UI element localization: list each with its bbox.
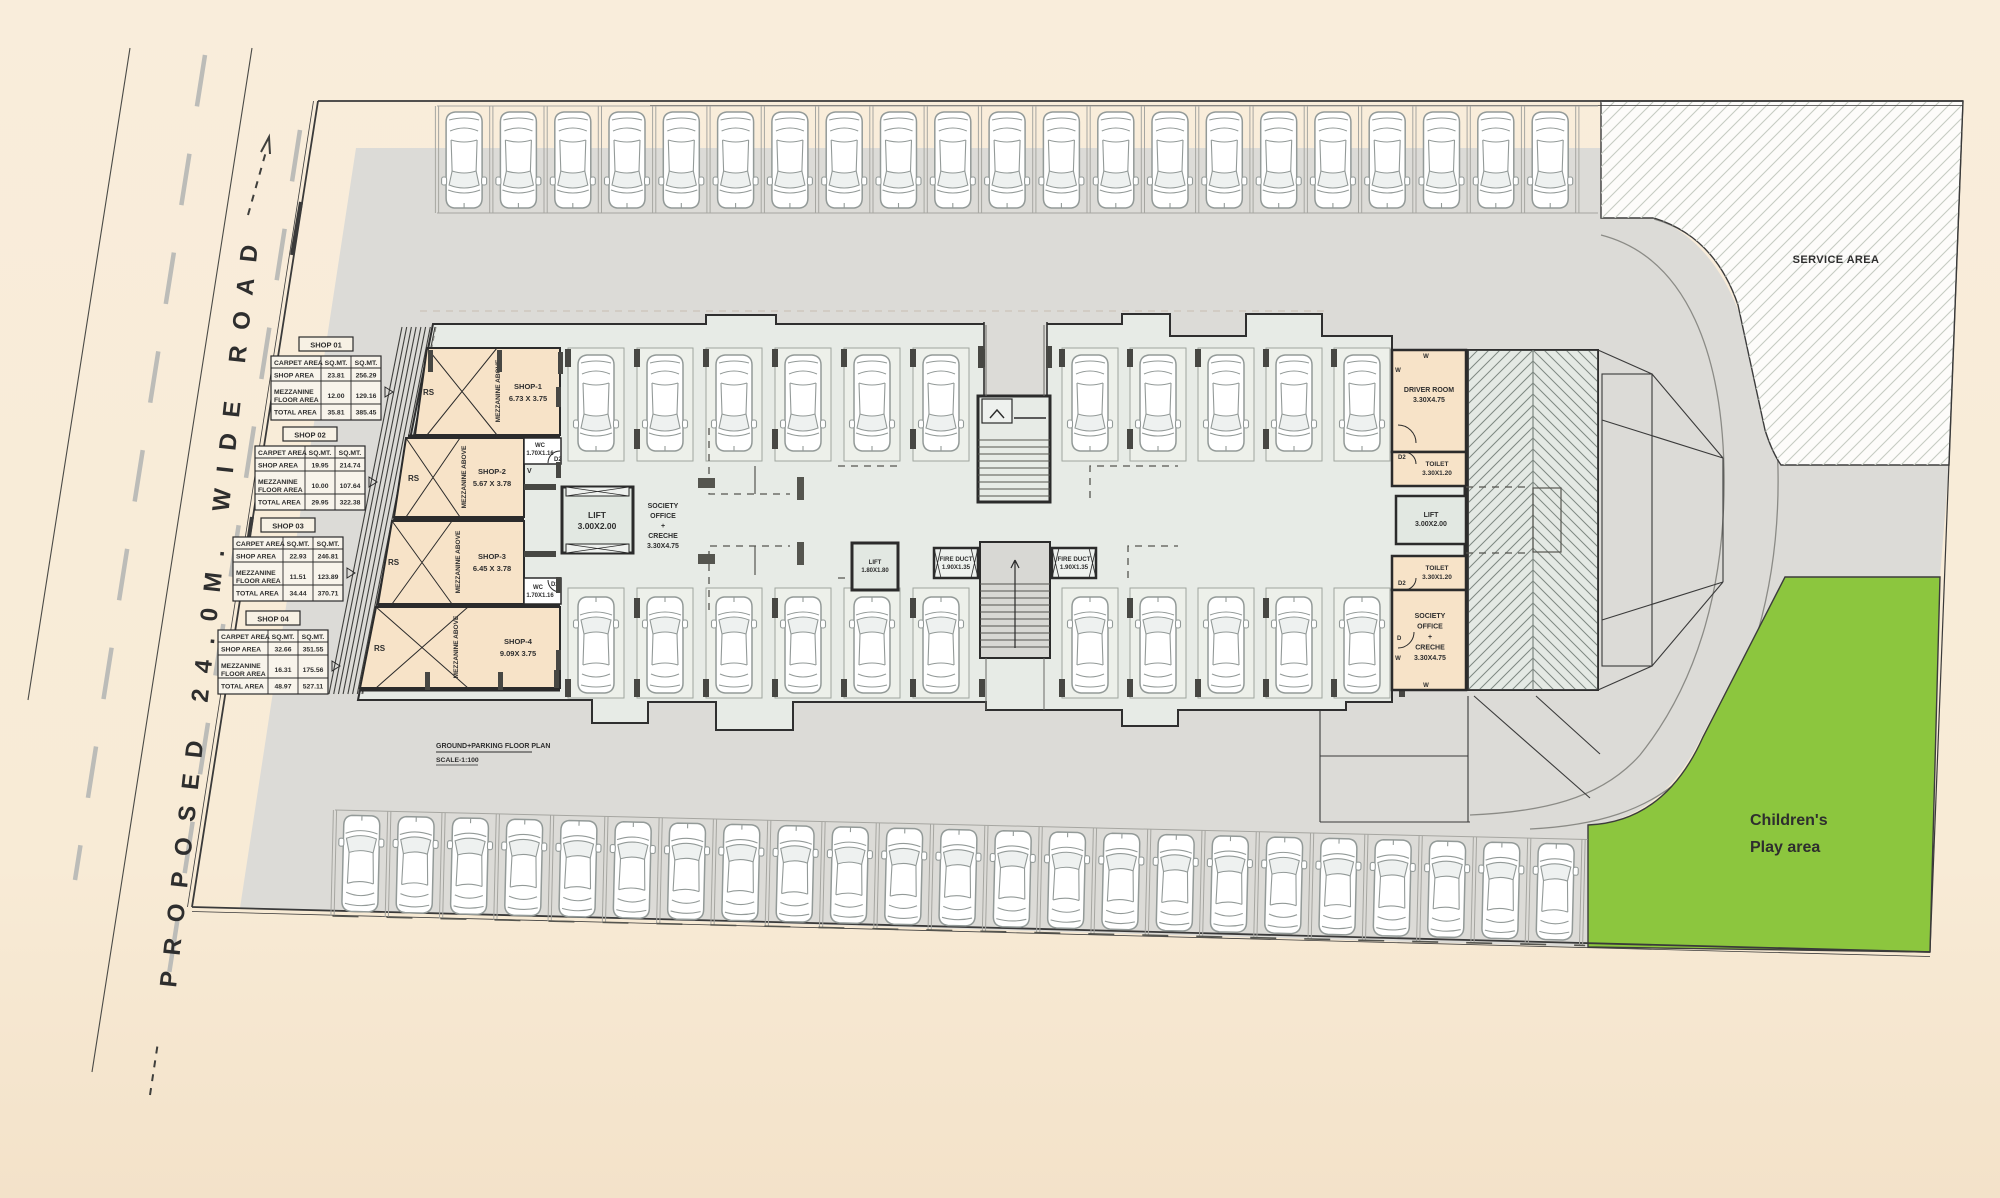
svg-text:246.81: 246.81 xyxy=(318,554,339,561)
svg-text:6.73 X 3.75: 6.73 X 3.75 xyxy=(509,394,547,403)
svg-text:TOTAL AREA: TOTAL AREA xyxy=(236,591,279,598)
svg-text:WC: WC xyxy=(533,585,544,591)
svg-text:SHOP AREA: SHOP AREA xyxy=(258,463,298,470)
svg-text:TOTAL AREA: TOTAL AREA xyxy=(258,500,301,507)
svg-text:+: + xyxy=(661,523,665,530)
svg-text:SQ.MT.: SQ.MT. xyxy=(287,541,310,548)
svg-text:11.51: 11.51 xyxy=(290,574,307,581)
svg-text:1.70X1.16: 1.70X1.16 xyxy=(526,593,554,599)
svg-text:SQ.MT.: SQ.MT. xyxy=(339,450,362,457)
svg-text:MEZZANINE: MEZZANINE xyxy=(221,663,261,670)
svg-text:LIFT: LIFT xyxy=(1424,512,1439,519)
svg-text:SHOP-4: SHOP-4 xyxy=(504,637,533,646)
svg-text:FLOOR AREA: FLOOR AREA xyxy=(274,397,319,404)
svg-text:FLOOR AREA: FLOOR AREA xyxy=(221,671,266,678)
svg-text:SHOP AREA: SHOP AREA xyxy=(274,373,314,380)
svg-text:DRIVER ROOM: DRIVER ROOM xyxy=(1404,387,1454,394)
svg-text:3.30X4.75: 3.30X4.75 xyxy=(1414,655,1446,662)
svg-text:SQ.MT.: SQ.MT. xyxy=(309,450,332,457)
svg-text:107.64: 107.64 xyxy=(340,483,361,490)
svg-text:SHOP 03: SHOP 03 xyxy=(272,522,304,531)
svg-text:CRECHE: CRECHE xyxy=(648,533,678,540)
svg-text:256.29: 256.29 xyxy=(356,373,377,380)
svg-text:3.00X2.00: 3.00X2.00 xyxy=(578,521,617,531)
svg-text:MEZZANINE ABOVE: MEZZANINE ABOVE xyxy=(461,445,468,508)
svg-text:SHOP-3: SHOP-3 xyxy=(478,552,506,561)
svg-text:V: V xyxy=(527,468,532,475)
svg-text:322.38: 322.38 xyxy=(340,500,361,507)
svg-text:19.95: 19.95 xyxy=(311,463,328,470)
svg-text:TOILET: TOILET xyxy=(1426,565,1449,572)
svg-text:5.67 X 3.78: 5.67 X 3.78 xyxy=(473,479,511,488)
svg-text:D: D xyxy=(1397,636,1402,642)
svg-text:SCALE-1:100: SCALE-1:100 xyxy=(436,757,479,764)
svg-text:RS: RS xyxy=(374,644,386,653)
svg-text:Children's: Children's xyxy=(1750,812,1828,829)
svg-text:OFFICE: OFFICE xyxy=(650,513,676,520)
svg-text:35.81: 35.81 xyxy=(327,410,344,417)
svg-text:129.16: 129.16 xyxy=(356,393,377,400)
svg-text:CARPET AREA: CARPET AREA xyxy=(274,360,323,367)
svg-text:385.45: 385.45 xyxy=(356,410,377,417)
svg-text:SOCIETY: SOCIETY xyxy=(1415,613,1446,620)
svg-text:LIFT: LIFT xyxy=(869,560,882,566)
svg-text:RS: RS xyxy=(423,388,435,397)
svg-text:+: + xyxy=(1428,634,1432,641)
svg-text:CARPET AREA: CARPET AREA xyxy=(236,541,285,548)
svg-text:175.56: 175.56 xyxy=(303,667,324,674)
svg-text:W: W xyxy=(1423,683,1429,689)
svg-text:SHOP 01: SHOP 01 xyxy=(310,341,342,350)
svg-text:MEZZANINE: MEZZANINE xyxy=(258,479,298,486)
svg-text:29.95: 29.95 xyxy=(311,500,328,507)
svg-text:SERVICE AREA: SERVICE AREA xyxy=(1793,254,1880,266)
svg-text:214.74: 214.74 xyxy=(340,463,361,470)
svg-text:12.00: 12.00 xyxy=(327,393,344,400)
svg-text:Play area: Play area xyxy=(1750,839,1820,856)
svg-text:W: W xyxy=(1395,368,1401,374)
svg-text:SHOP AREA: SHOP AREA xyxy=(236,554,276,561)
svg-text:34.44: 34.44 xyxy=(289,591,306,598)
svg-text:D2: D2 xyxy=(1398,455,1406,461)
svg-text:3.30X1.20: 3.30X1.20 xyxy=(1422,574,1452,581)
svg-text:16.31: 16.31 xyxy=(274,667,291,674)
svg-text:MEZZANINE: MEZZANINE xyxy=(236,570,276,577)
svg-text:23.81: 23.81 xyxy=(327,373,344,380)
svg-text:3.30X4.75: 3.30X4.75 xyxy=(647,543,679,550)
svg-text:TOTAL AREA: TOTAL AREA xyxy=(221,684,264,691)
svg-text:SHOP-2: SHOP-2 xyxy=(478,467,506,476)
svg-text:MEZZANINE ABOVE: MEZZANINE ABOVE xyxy=(455,530,462,593)
svg-text:TOILET: TOILET xyxy=(1426,461,1449,468)
svg-text:351.55: 351.55 xyxy=(303,647,324,654)
svg-text:SHOP-1: SHOP-1 xyxy=(514,382,542,391)
svg-text:3.00X2.00: 3.00X2.00 xyxy=(1415,521,1447,528)
svg-text:3.30X4.75: 3.30X4.75 xyxy=(1413,397,1445,404)
svg-text:SOCIETY: SOCIETY xyxy=(648,503,679,510)
svg-text:GROUND+PARKING FLOOR PLAN: GROUND+PARKING FLOOR PLAN xyxy=(436,743,550,750)
svg-text:SQ.MT.: SQ.MT. xyxy=(272,634,295,641)
svg-text:6.45 X 3.78: 6.45 X 3.78 xyxy=(473,564,511,573)
svg-text:FLOOR AREA: FLOOR AREA xyxy=(258,487,303,494)
svg-text:370.71: 370.71 xyxy=(318,591,339,598)
svg-text:123.89: 123.89 xyxy=(318,574,339,581)
svg-text:1.80X1.80: 1.80X1.80 xyxy=(861,568,889,574)
svg-text:FIRE DUCT: FIRE DUCT xyxy=(1058,556,1091,563)
svg-text:W: W xyxy=(1395,656,1401,662)
svg-text:SQ.MT.: SQ.MT. xyxy=(355,360,378,367)
svg-text:RS: RS xyxy=(408,474,420,483)
svg-text:OFFICE: OFFICE xyxy=(1417,624,1443,631)
svg-text:SHOP 02: SHOP 02 xyxy=(294,431,326,440)
svg-text:WC: WC xyxy=(535,443,546,449)
svg-text:10.00: 10.00 xyxy=(311,483,328,490)
svg-text:CARPET AREA: CARPET AREA xyxy=(221,634,270,641)
svg-text:SQ.MT.: SQ.MT. xyxy=(317,541,340,548)
svg-text:32.66: 32.66 xyxy=(274,647,291,654)
svg-text:CARPET AREA: CARPET AREA xyxy=(258,450,307,457)
svg-text:MEZZANINE: MEZZANINE xyxy=(274,389,314,396)
svg-text:CRECHE: CRECHE xyxy=(1415,645,1445,652)
svg-text:SHOP 04: SHOP 04 xyxy=(257,615,289,624)
svg-text:3.30X1.20: 3.30X1.20 xyxy=(1422,470,1452,477)
svg-text:527.11: 527.11 xyxy=(303,684,324,691)
svg-text:9.09X 3.75: 9.09X 3.75 xyxy=(500,649,536,658)
svg-text:TOTAL AREA: TOTAL AREA xyxy=(274,410,317,417)
svg-text:SQ.MT.: SQ.MT. xyxy=(325,360,348,367)
svg-text:FLOOR AREA: FLOOR AREA xyxy=(236,578,281,585)
svg-text:48.97: 48.97 xyxy=(274,684,291,691)
svg-text:RS: RS xyxy=(388,558,400,567)
svg-text:LIFT: LIFT xyxy=(588,510,607,520)
svg-text:W: W xyxy=(1423,354,1429,360)
svg-text:22.93: 22.93 xyxy=(289,554,306,561)
svg-text:D2: D2 xyxy=(1398,581,1406,587)
svg-text:SQ.MT.: SQ.MT. xyxy=(302,634,325,641)
svg-text:1.90X1.35: 1.90X1.35 xyxy=(942,564,971,571)
svg-text:1.90X1.35: 1.90X1.35 xyxy=(1060,564,1089,571)
svg-text:SHOP AREA: SHOP AREA xyxy=(221,647,261,654)
svg-text:MEZZANINE ABOVE: MEZZANINE ABOVE xyxy=(453,615,460,678)
svg-text:FIRE DUCT: FIRE DUCT xyxy=(940,556,973,563)
